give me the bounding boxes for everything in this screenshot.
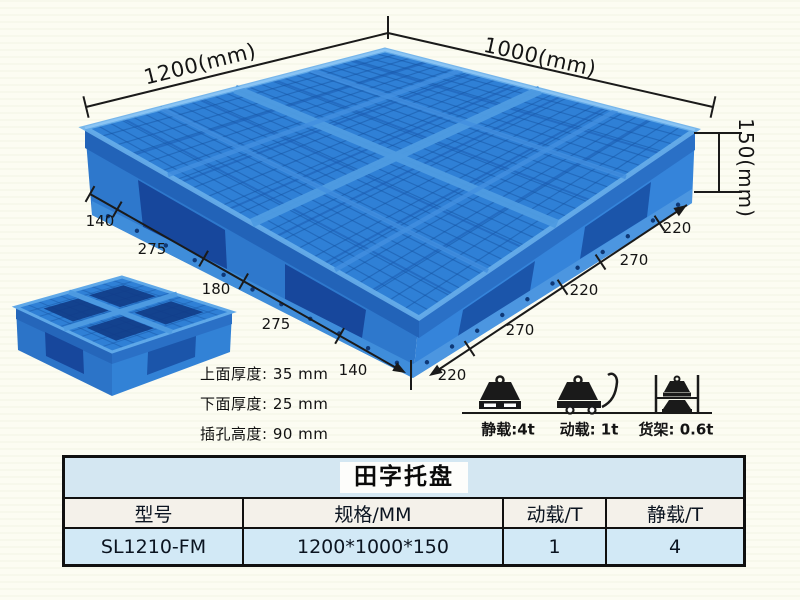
cell-spec: 1200*1000*150 [242,527,502,564]
col-header-spec: 规格/MM [242,497,502,527]
dim-chain-label: 180 [202,280,231,298]
table-title: 田字托盘 [340,462,468,493]
load-icons [462,374,712,414]
dim-label-150: 150(mm) [734,118,758,218]
dynamic-load-label: 动载: 1t [560,419,619,440]
cell-dynamic-load: 1 [502,527,605,564]
cell-static-load: 4 [605,527,743,564]
rack-load-label: 货架: 0.6t [639,419,714,440]
dim-chain-label: 140 [339,361,368,379]
col-header-static: 静载/T [605,497,743,527]
cell-model: SL1210-FM [65,527,242,564]
dynamic-load-icon [557,374,617,414]
pallet-product-sheet: 1200(mm) 1000(mm) 150(mm) 140 275 180 27… [0,0,800,600]
static-load-icon [479,377,521,410]
spec-fork-height: 插孔高度: 90 mm [200,423,328,444]
col-header-dynamic: 动载/T [502,497,605,527]
rack-load-icon [656,375,698,413]
dim-chain-label: 220 [438,366,467,384]
dim-chain-label: 270 [506,321,535,339]
dim-chain-label: 220 [663,219,692,237]
dim-chain-label: 275 [138,240,167,258]
col-header-model: 型号 [65,497,242,527]
dim-chain-label: 140 [86,212,115,230]
dim-chain-label: 270 [620,251,649,269]
table-title-row: 田字托盘 [65,458,743,497]
spec-bottom-thickness: 下面厚度: 25 mm [200,393,328,414]
spec-top-thickness: 上面厚度: 35 mm [200,363,328,384]
static-load-label: 静载:4t [481,419,535,440]
dim-chain-label: 220 [570,281,599,299]
spec-table: 田字托盘 型号 规格/MM 动载/T 静载/T SL1210-FM 1200*1… [62,455,746,567]
dim-chain-label: 275 [262,315,291,333]
